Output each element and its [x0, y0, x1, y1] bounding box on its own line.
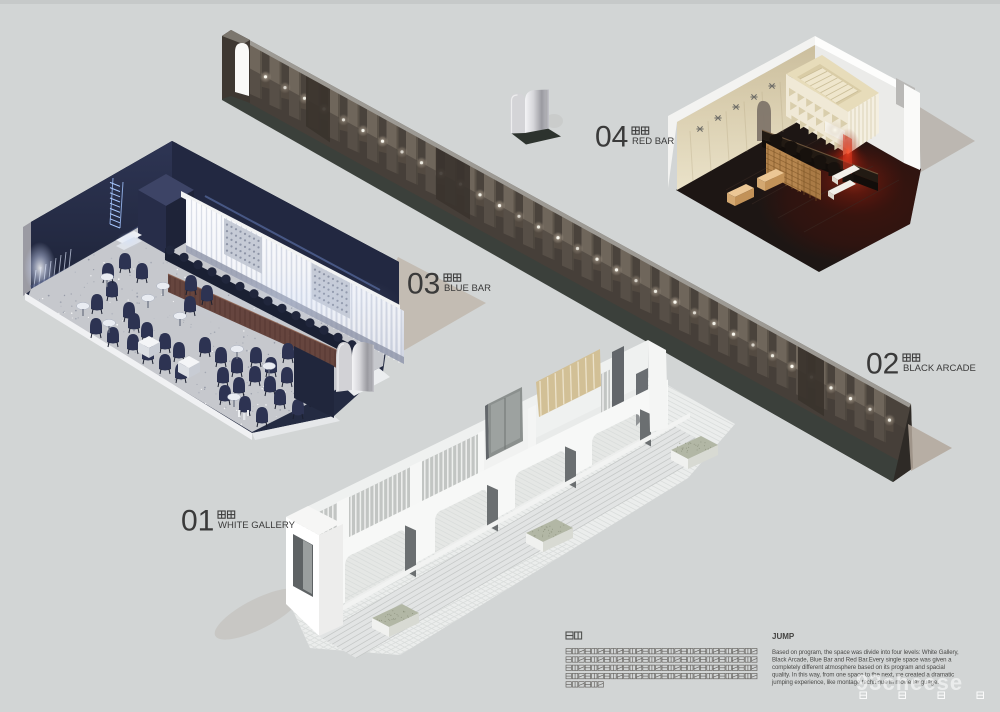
svg-text:RED BAR: RED BAR — [632, 136, 674, 147]
svg-text:JUMP: JUMP — [772, 632, 795, 641]
svg-text:93cheese: 93cheese — [856, 670, 963, 695]
svg-text:01: 01 — [181, 505, 214, 538]
svg-text:Based on program, the space wa: Based on program, the space was divide i… — [772, 649, 959, 656]
svg-text:04: 04 — [595, 121, 628, 154]
svg-text:03: 03 — [407, 268, 440, 301]
svg-text:02: 02 — [866, 348, 899, 381]
svg-text:BLACK ARCADE: BLACK ARCADE — [903, 363, 976, 374]
svg-text:WHITE GALLERY: WHITE GALLERY — [218, 520, 296, 531]
svg-text:Black Arcade, Blue Bar and Red: Black Arcade, Blue Bar and Red Bar.Every… — [772, 657, 952, 664]
svg-text:BLUE BAR: BLUE BAR — [444, 283, 491, 294]
